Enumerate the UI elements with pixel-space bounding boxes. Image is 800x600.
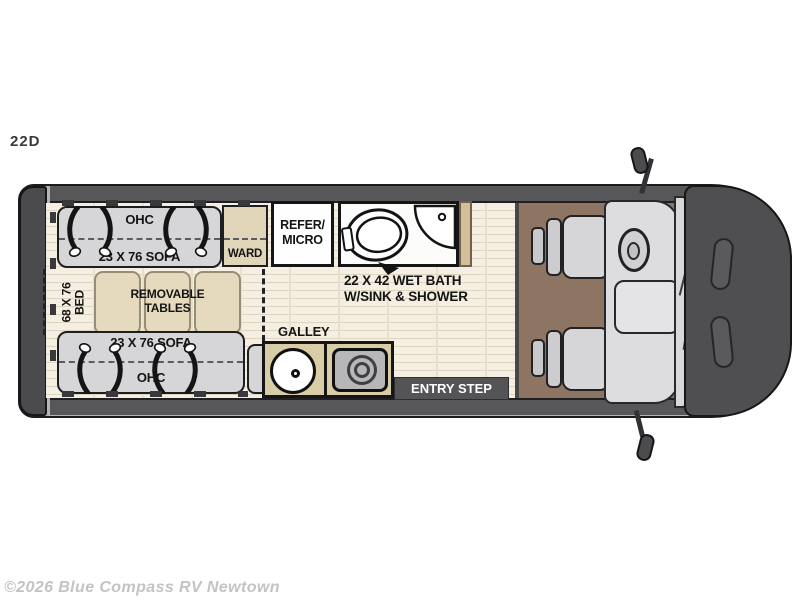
steering-hub <box>627 242 640 260</box>
burner-inner-ring <box>354 362 370 378</box>
wet-bath-label-line1: 22 X 42 WET BATH <box>344 273 461 288</box>
model-label: 22D <box>10 134 41 151</box>
seatbelt-icons-top <box>57 206 222 268</box>
tables-label-line2: TABLES <box>94 302 241 315</box>
driver-seat-headrest <box>531 227 545 265</box>
dealer-watermark: ©2026 Blue Compass RV Newtown <box>4 579 280 597</box>
bath-wall <box>459 201 472 267</box>
bed-label-line2: BED <box>74 282 87 322</box>
side-mirror-icon <box>635 433 656 463</box>
rv-floorplan-image: 22D OHC 23 X 76 SOFA WARD REFER/ MICRO <box>0 0 800 600</box>
galley-label: GALLEY <box>278 325 330 340</box>
galley-divider <box>324 344 327 395</box>
wet-bath-label-line2: W/SINK & SHOWER <box>344 289 468 304</box>
ward-dashed-line <box>224 238 266 240</box>
ward-label: WARD <box>220 248 270 261</box>
galley-dashed-line <box>262 269 265 341</box>
passenger-seat-back <box>546 330 562 388</box>
cooktop-icon <box>332 348 388 392</box>
van-wall-bottom <box>50 398 690 415</box>
passenger-seat <box>562 327 610 391</box>
cabinet-ticks-bottom <box>62 391 248 397</box>
refer-label-line2: MICRO <box>271 233 334 247</box>
sink-icon <box>270 348 316 394</box>
entry-step: ENTRY STEP <box>394 377 509 400</box>
corner-shower-icon <box>415 206 455 248</box>
tables-label-line1: REMOVABLE <box>94 288 241 301</box>
side-mirror-icon <box>629 146 650 176</box>
cab-divider-pillar <box>515 203 519 398</box>
toilet-icon <box>341 206 410 264</box>
wet-bath-fixtures <box>341 204 456 264</box>
refer-label-line1: REFER/ <box>271 218 334 232</box>
van-hood <box>684 185 792 417</box>
driver-seat-back <box>546 218 562 276</box>
bed-label-line1: 68 X 76 <box>61 282 74 322</box>
center-console <box>614 280 680 334</box>
galley-counter <box>262 341 394 398</box>
passenger-seat-headrest <box>531 339 545 377</box>
cabinet-ticks-top <box>62 200 262 206</box>
sink-drain <box>291 369 300 378</box>
seatbelt-icons-bottom <box>57 331 245 394</box>
driver-seat <box>562 215 610 279</box>
